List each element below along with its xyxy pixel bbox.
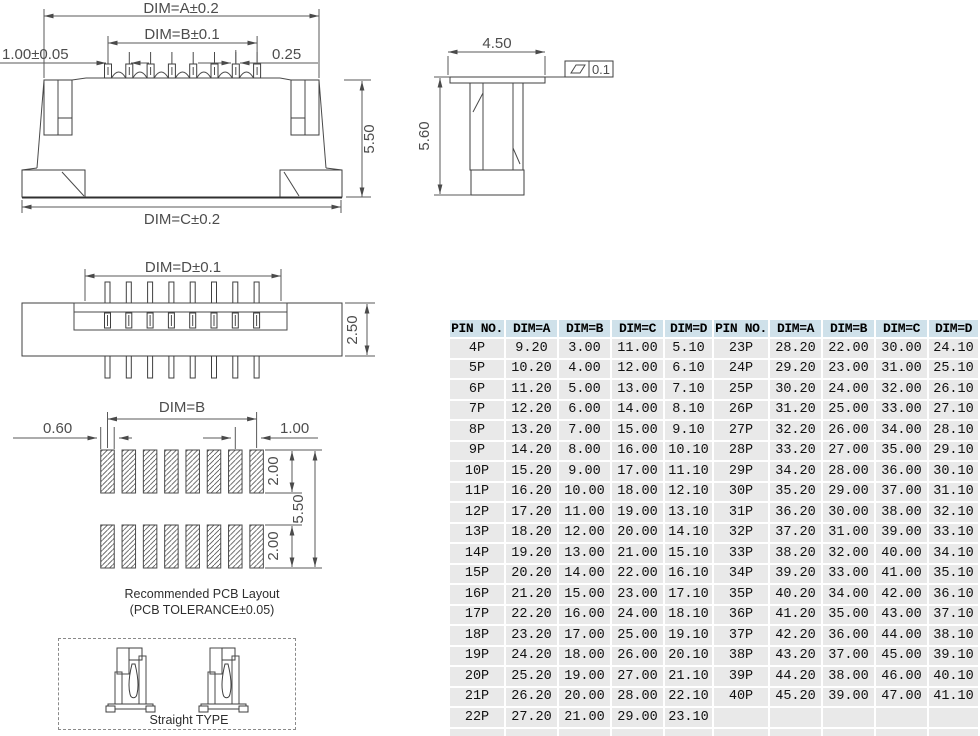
table-cell: 9.20 [506,339,557,358]
table-cell: 42.20 [770,626,821,645]
table-cell: 38.00 [823,667,874,686]
table-cell [770,708,821,727]
table-cell: 5P [450,360,504,379]
table-cell: 15.10 [665,544,712,563]
table-cell: 22.10 [665,688,712,707]
table-cell: 26.00 [823,421,874,440]
table-cell: 8P [450,421,504,440]
table-cell: 14.00 [559,565,610,584]
thickness-label: 2.50 [344,315,361,344]
table-cell: 15.20 [506,462,557,481]
table-cell: 26.10 [929,380,978,399]
table-cell: 36.10 [929,585,978,604]
table-cell: 31.00 [823,524,874,543]
table-cell [823,729,874,736]
table-cell: 28.00 [823,462,874,481]
table-row: 13P18.2012.0020.0014.1032P37.2031.0039.0… [450,524,978,543]
table-cell: 24.00 [823,380,874,399]
table-cell: 38.10 [929,626,978,645]
table-cell: 46.00 [876,667,927,686]
table-cell: 9P [450,442,504,461]
table-cell: 39.10 [929,647,978,666]
table-cell: 11P [450,483,504,502]
table-cell: 26.00 [612,647,663,666]
table-cell: 35.00 [876,442,927,461]
table-cell: 26P [714,401,768,420]
table-cell: 25.10 [929,360,978,379]
table-cell: 21.20 [506,585,557,604]
table-cell: 40.10 [929,667,978,686]
column-header: DIM=A [770,320,821,337]
table-cell: 15.00 [612,421,663,440]
table-cell: 23.00 [612,585,663,604]
pad-width-dimension: 0.60 [13,420,132,449]
table-row: 18P23.2017.0025.0019.1037P42.2036.0044.0… [450,626,978,645]
table-cell: 4P [450,339,504,358]
table-cell: 43.20 [770,647,821,666]
pcb-layout-drawing: DIM=B 0.60 1.00 2.00 2.00 5.50 [0,395,400,625]
table-cell: 18.10 [665,606,712,625]
table-cell: 6.10 [665,360,712,379]
dim-a-label: DIM=A±0.2 [143,0,218,17]
table-row: 10P15.209.0017.0011.1029P34.2028.0036.00… [450,462,978,481]
pad-pitch-dimension: 1.00 [203,420,318,449]
table-cell: 35.20 [770,483,821,502]
table-cell: 7.10 [665,380,712,399]
table-cell: 23.00 [823,360,874,379]
table-cell: 29.00 [823,483,874,502]
table-cell: 27.00 [823,442,874,461]
table-cell: 38P [714,647,768,666]
straight-type-box: Straight TYPE [58,638,296,730]
table-cell: 6P [450,380,504,399]
table-row: 20P25.2019.0027.0021.1039P44.2038.0046.0… [450,667,978,686]
table-cell: 32P [714,524,768,543]
table-cell: 16.10 [665,565,712,584]
flatness-value: 0.1 [592,62,610,77]
table-cell: 44.20 [770,667,821,686]
table-cell: 41.00 [876,565,927,584]
table-cell: 18.00 [559,647,610,666]
table-cell: 8.10 [665,401,712,420]
table-cell: 39.00 [823,688,874,707]
table-cell: 10.00 [559,483,610,502]
table-cell: 34.00 [823,585,874,604]
table-cell: 43.00 [876,606,927,625]
table-cell: 24.00 [612,606,663,625]
table-cell [876,729,927,736]
table-cell: 28.20 [770,339,821,358]
table-cell: 22P [450,708,504,727]
table-row: 11P16.2010.0018.0012.1030P35.2029.0037.0… [450,483,978,502]
table-cell: 21.00 [559,708,610,727]
thickness-dimension: 2.50 [344,303,375,356]
table-cell: 36.00 [823,626,874,645]
table-cell [714,729,768,736]
row-span-dimension: 5.50 [290,451,315,567]
table-cell: 28.00 [612,688,663,707]
table-cell: 13.00 [559,544,610,563]
side-width-dimension: 4.50 [448,35,545,75]
table-cell: 47.00 [876,688,927,707]
table-cell: 27.20 [506,708,557,727]
table-cell: 20.20 [506,565,557,584]
table-cell: 30P [714,483,768,502]
side-width-label: 4.50 [482,35,511,52]
terminal-section-left [106,648,155,712]
table-row: 14P19.2013.0021.0015.1033P38.2032.0040.0… [450,544,978,563]
table-cell: 14.00 [612,401,663,420]
pcb-caption-line2: (PCB TOLERANCE±0.05) [130,603,275,617]
table-cell: 33.10 [929,524,978,543]
connector-datasheet-page: DIM=A±0.2 DIM=B±0.1 1.00±0.05 0.25 5.50 [0,0,980,736]
table-cell: 30.20 [770,380,821,399]
table-cell: 36P [714,606,768,625]
dim-c-dimension: DIM=C±0.2 [22,200,341,228]
height-label: 5.50 [361,124,378,153]
table-cell: 17.00 [559,626,610,645]
pcb-pads [101,450,264,568]
table-header-row: PIN NO.DIM=ADIM=BDIM=CDIM=DPIN NO.DIM=AD… [450,320,978,337]
table-cell: 36.00 [876,462,927,481]
table-cell: 3.00 [559,339,610,358]
table-cell: 40.00 [876,544,927,563]
table-cell: 39.20 [770,565,821,584]
table-cell: 5.10 [665,339,712,358]
table-cell: 39.00 [876,524,927,543]
pad-pitch-label: 1.00 [280,420,309,437]
table-cell: 33P [714,544,768,563]
dim-d-dimension: DIM=D±0.1 [85,259,281,301]
table-cell: 29P [714,462,768,481]
table-cell: 17.10 [665,585,712,604]
flatness-tolerance-frame: 0.1 [545,61,613,77]
table-cell: 20P [450,667,504,686]
pitch-dimension: 1.00±0.05 [0,46,149,63]
pin-dimension-table: PIN NO.DIM=ADIM=BDIM=CDIM=DPIN NO.DIM=AD… [448,318,980,736]
table-cell: 40P [714,688,768,707]
table-cell: 6.00 [559,401,610,420]
table-cell: 27.00 [612,667,663,686]
table-cell [823,708,874,727]
table-cell: 41.10 [929,688,978,707]
table-cell: 35.00 [823,606,874,625]
table-cell: 32.20 [770,421,821,440]
pin-width-label: 0.25 [272,46,301,63]
side-body-outline [450,77,545,195]
table-cell: 34.20 [770,462,821,481]
table-cell [876,708,927,727]
table-cell: 25.00 [823,401,874,420]
table-cell: 39P [714,667,768,686]
table-row [450,729,978,736]
table-cell: 28.10 [929,421,978,440]
table-cell: 13P [450,524,504,543]
table-cell: 23P [714,339,768,358]
table-cell: 13.00 [612,380,663,399]
table-cell: 22.00 [612,565,663,584]
column-header: DIM=B [823,320,874,337]
dim-d-label: DIM=D±0.1 [145,259,221,276]
table-cell: 13.10 [665,503,712,522]
table-cell: 32.00 [876,380,927,399]
side-view-drawing: 4.50 5.60 0.1 [400,0,660,220]
front-body-outline [22,52,342,198]
table-cell: 35.10 [929,565,978,584]
table-cell: 16.00 [559,606,610,625]
pin-width-dimension: 0.25 [198,46,318,64]
table-cell: 10P [450,462,504,481]
pcb-dim-b-dimension: DIM=B [108,399,257,448]
table-cell: 36.20 [770,503,821,522]
table-cell: 17P [450,606,504,625]
table-cell: 42.00 [876,585,927,604]
table-cell: 38.00 [876,503,927,522]
table-row: 6P11.205.0013.007.1025P30.2024.0032.0026… [450,380,978,399]
table-cell: 12.10 [665,483,712,502]
table-row: 15P20.2014.0022.0016.1034P39.2033.0041.0… [450,565,978,584]
table-cell: 33.00 [876,401,927,420]
table-cell [506,729,557,736]
table-row: 8P13.207.0015.009.1027P32.2026.0034.0028… [450,421,978,440]
table-cell: 44.00 [876,626,927,645]
table-cell: 37.10 [929,606,978,625]
table-cell: 41.20 [770,606,821,625]
table-cell: 16.00 [612,442,663,461]
table-cell: 19.00 [612,503,663,522]
table-row: 7P12.206.0014.008.1026P31.2025.0033.0027… [450,401,978,420]
table-cell: 14.10 [665,524,712,543]
table-cell: 19P [450,647,504,666]
column-header: DIM=C [876,320,927,337]
dim-b-label: DIM=B±0.1 [144,26,219,43]
table-cell: 31.10 [929,483,978,502]
column-header: DIM=D [665,320,712,337]
top-body-outline [22,282,342,378]
table-cell: 28P [714,442,768,461]
table-cell: 19.10 [665,626,712,645]
table-cell: 40.20 [770,585,821,604]
pitch-label: 1.00±0.05 [2,46,69,63]
table-cell: 27.10 [929,401,978,420]
pad-len-bottom-label: 2.00 [265,531,282,560]
column-header: DIM=D [929,320,978,337]
table-cell: 14.20 [506,442,557,461]
table-cell: 23.20 [506,626,557,645]
table-cell: 18P [450,626,504,645]
pad-width-label: 0.60 [43,420,72,437]
table-cell: 16.20 [506,483,557,502]
table-cell: 11.00 [612,339,663,358]
table-cell: 10.20 [506,360,557,379]
table-cell: 15P [450,565,504,584]
table-cell: 12P [450,503,504,522]
table-cell [612,729,663,736]
terminal-cross-sections: Straight TYPE [59,639,294,728]
table-cell: 11.10 [665,462,712,481]
table-cell: 24P [714,360,768,379]
table-cell: 20.00 [559,688,610,707]
table-cell: 33.20 [770,442,821,461]
table-row: 21P26.2020.0028.0022.1040P45.2039.0047.0… [450,688,978,707]
table-cell: 16P [450,585,504,604]
table-cell: 17.20 [506,503,557,522]
dim-c-label: DIM=C±0.2 [144,211,220,228]
table-cell: 20.00 [612,524,663,543]
table-cell: 31P [714,503,768,522]
table-cell: 19.00 [559,667,610,686]
table-cell: 24.10 [929,339,978,358]
pad-len-top-label: 2.00 [265,456,282,485]
pin-table-body: 4P9.203.0011.005.1023P28.2022.0030.0024.… [450,339,978,736]
table-cell: 22.00 [823,339,874,358]
pcb-caption-line1: Recommended PCB Layout [125,587,280,601]
table-cell: 45.20 [770,688,821,707]
table-cell: 38.20 [770,544,821,563]
pcb-dim-b-label: DIM=B [159,399,205,416]
table-cell: 7P [450,401,504,420]
top-view-drawing: DIM=D±0.1 2.50 [0,255,390,405]
column-header: DIM=A [506,320,557,337]
table-cell: 29.00 [612,708,663,727]
table-row: 9P14.208.0016.0010.1028P33.2027.0035.002… [450,442,978,461]
table-cell: 21.10 [665,667,712,686]
table-cell: 11.00 [559,503,610,522]
table-cell: 21.00 [612,544,663,563]
table-cell [770,729,821,736]
table-cell: 25.20 [506,667,557,686]
height-dimension: 5.50 [344,80,378,197]
table-cell: 12.00 [612,360,663,379]
table-cell: 24.20 [506,647,557,666]
table-row: 22P27.2021.0029.0023.10 [450,708,978,727]
table-row: 19P24.2018.0026.0020.1038P43.2037.0045.0… [450,647,978,666]
row-span-label: 5.50 [290,494,307,523]
column-header: DIM=B [559,320,610,337]
table-cell: 11.20 [506,380,557,399]
table-cell: 9.10 [665,421,712,440]
table-cell: 37P [714,626,768,645]
table-cell: 4.00 [559,360,610,379]
table-cell: 5.00 [559,380,610,399]
table-cell: 37.00 [876,483,927,502]
table-cell: 31.20 [770,401,821,420]
table-cell: 13.20 [506,421,557,440]
table-cell: 18.20 [506,524,557,543]
table-cell: 23.10 [665,708,712,727]
table-row: 12P17.2011.0019.0013.1031P36.2030.0038.0… [450,503,978,522]
front-view-drawing: DIM=A±0.2 DIM=B±0.1 1.00±0.05 0.25 5.50 [0,0,400,240]
side-height-dimension: 5.60 [416,77,471,195]
table-cell: 34.00 [876,421,927,440]
terminal-section-right [199,648,248,712]
table-row: 16P21.2015.0023.0017.1035P40.2034.0042.0… [450,585,978,604]
table-cell: 22.20 [506,606,557,625]
table-cell: 7.00 [559,421,610,440]
dim-b-dimension: DIM=B±0.1 [108,26,257,62]
table-cell [665,729,712,736]
table-cell: 14P [450,544,504,563]
table-cell: 33.00 [823,565,874,584]
table-cell: 45.00 [876,647,927,666]
table-cell: 31.00 [876,360,927,379]
table-cell: 29.10 [929,442,978,461]
straight-type-label: Straight TYPE [150,713,229,727]
table-cell: 37.00 [823,647,874,666]
table-cell: 25P [714,380,768,399]
table-cell [929,708,978,727]
table-cell: 37.20 [770,524,821,543]
table-cell: 17.00 [612,462,663,481]
column-header: PIN NO. [450,320,504,337]
side-height-label: 5.60 [416,121,433,150]
table-cell: 30.00 [876,339,927,358]
table-row: 5P10.204.0012.006.1024P29.2023.0031.0025… [450,360,978,379]
table-cell: 32.00 [823,544,874,563]
table-cell: 18.00 [612,483,663,502]
column-header: DIM=C [612,320,663,337]
table-cell: 19.20 [506,544,557,563]
table-cell: 20.10 [665,647,712,666]
table-cell: 34P [714,565,768,584]
table-cell [929,729,978,736]
table-cell: 12.00 [559,524,610,543]
table-cell: 21P [450,688,504,707]
column-header: PIN NO. [714,320,768,337]
table-cell: 35P [714,585,768,604]
table-cell: 15.00 [559,585,610,604]
table-cell: 30.10 [929,462,978,481]
table-cell: 9.00 [559,462,610,481]
table-cell: 25.00 [612,626,663,645]
table-cell: 26.20 [506,688,557,707]
table-cell [450,729,504,736]
table-cell: 8.00 [559,442,610,461]
table-cell [559,729,610,736]
table-row: 17P22.2016.0024.0018.1036P41.2035.0043.0… [450,606,978,625]
table-cell: 27P [714,421,768,440]
table-cell: 30.00 [823,503,874,522]
table-cell: 32.10 [929,503,978,522]
table-row: 4P9.203.0011.005.1023P28.2022.0030.0024.… [450,339,978,358]
table-cell: 34.10 [929,544,978,563]
table-cell: 29.20 [770,360,821,379]
table-cell: 10.10 [665,442,712,461]
table-cell: 12.20 [506,401,557,420]
table-cell [714,708,768,727]
